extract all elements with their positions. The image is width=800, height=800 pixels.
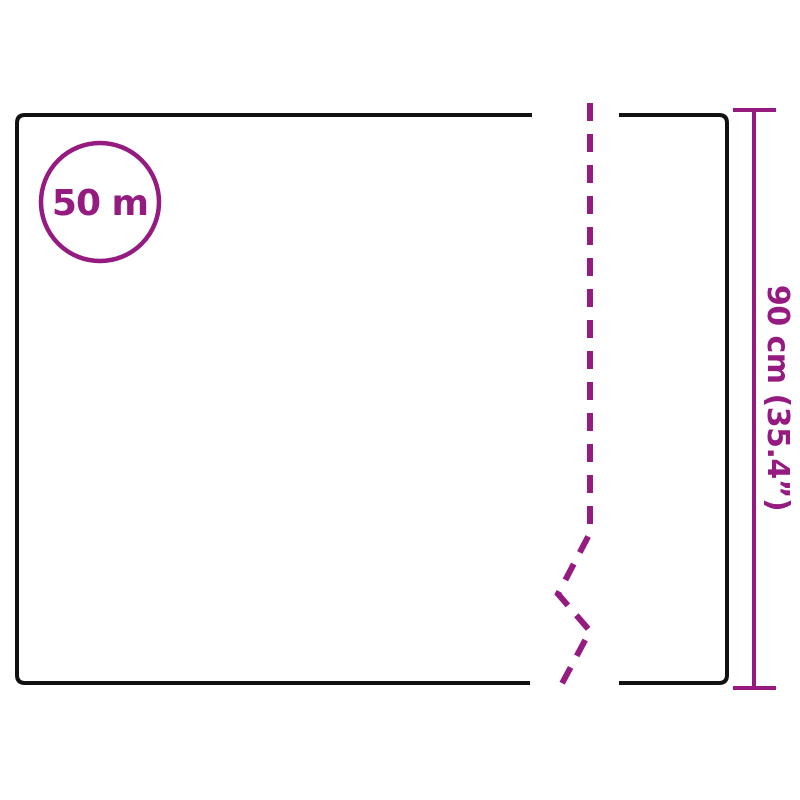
- length-badge: 50 m: [41, 143, 159, 261]
- length-badge-label: 50 m: [52, 183, 148, 224]
- height-dimension-label: 90 cm (35.4”): [760, 285, 795, 511]
- diagram-canvas: 50 m 90 cm (35.4”): [0, 0, 800, 800]
- product-dimension-diagram: 50 m 90 cm (35.4”): [0, 0, 800, 800]
- cut-break-line: [558, 103, 590, 691]
- product-outline-right: [619, 115, 727, 683]
